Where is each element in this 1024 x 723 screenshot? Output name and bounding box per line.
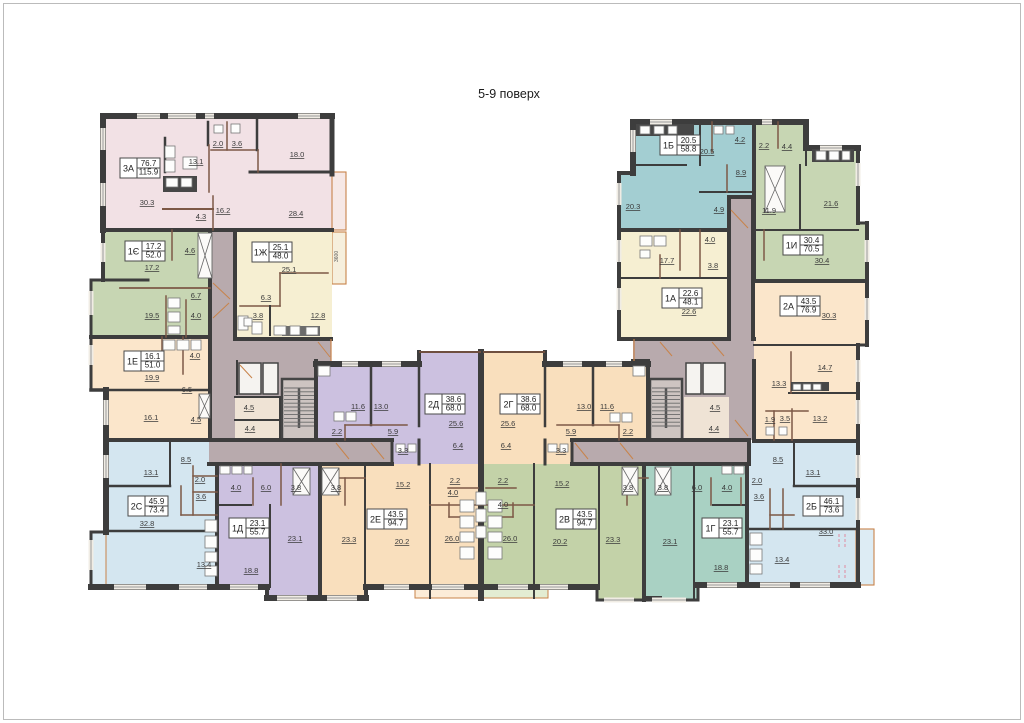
svg-text:17.7: 17.7: [660, 256, 675, 265]
svg-text:3600: 3600: [334, 251, 340, 262]
svg-text:51.0: 51.0: [145, 361, 161, 370]
svg-text:5-9 поверх: 5-9 поверх: [478, 87, 541, 101]
svg-text:13.4: 13.4: [197, 560, 212, 569]
svg-text:33.0: 33.0: [819, 527, 834, 536]
svg-text:2.2: 2.2: [332, 427, 342, 436]
svg-text:13.2: 13.2: [813, 414, 828, 423]
svg-text:26.0: 26.0: [445, 534, 460, 543]
svg-text:3.6: 3.6: [196, 492, 206, 501]
svg-text:4.6: 4.6: [185, 246, 195, 255]
svg-text:20.2: 20.2: [553, 537, 568, 546]
svg-text:12.8: 12.8: [311, 311, 326, 320]
svg-text:5.9: 5.9: [388, 427, 398, 436]
svg-text:13.0: 13.0: [577, 402, 592, 411]
svg-text:5.9: 5.9: [566, 427, 576, 436]
svg-text:28.4: 28.4: [289, 209, 304, 218]
svg-text:4.3: 4.3: [196, 212, 206, 221]
svg-text:73.4: 73.4: [149, 506, 165, 515]
svg-text:19.9: 19.9: [145, 373, 160, 382]
svg-text:25.6: 25.6: [449, 419, 464, 428]
svg-text:2Б: 2Б: [806, 502, 817, 512]
svg-text:13.0: 13.0: [374, 402, 389, 411]
svg-text:4.0: 4.0: [191, 311, 201, 320]
svg-text:2Д: 2Д: [428, 400, 439, 410]
svg-text:13.1: 13.1: [144, 468, 159, 477]
svg-text:68.0: 68.0: [521, 404, 537, 413]
svg-text:23.3: 23.3: [606, 535, 621, 544]
svg-text:3.8: 3.8: [658, 483, 668, 492]
svg-text:11.6: 11.6: [600, 402, 614, 411]
svg-text:55.7: 55.7: [250, 528, 266, 537]
svg-text:1Б: 1Б: [663, 141, 674, 151]
svg-text:68.0: 68.0: [446, 404, 462, 413]
svg-text:52.0: 52.0: [146, 251, 162, 260]
svg-text:2.0: 2.0: [752, 476, 762, 485]
svg-text:25.6: 25.6: [501, 419, 516, 428]
svg-text:3.6: 3.6: [232, 139, 242, 148]
svg-text:6.0: 6.0: [692, 483, 702, 492]
svg-text:20.3: 20.3: [626, 202, 641, 211]
svg-text:70.5: 70.5: [804, 245, 820, 254]
svg-text:2.2: 2.2: [759, 141, 769, 150]
svg-text:4.5: 4.5: [244, 403, 254, 412]
svg-text:25.1: 25.1: [282, 265, 297, 274]
svg-text:15.2: 15.2: [396, 480, 411, 489]
svg-text:8.5: 8.5: [773, 455, 783, 464]
svg-text:6.0: 6.0: [261, 483, 271, 492]
svg-text:18.0: 18.0: [290, 150, 305, 159]
svg-text:48.0: 48.0: [273, 252, 289, 261]
svg-text:4.4: 4.4: [782, 142, 792, 151]
svg-text:58.8: 58.8: [681, 145, 697, 154]
svg-text:18.8: 18.8: [714, 563, 729, 572]
svg-text:48.1: 48.1: [683, 298, 699, 307]
svg-text:3.5: 3.5: [780, 414, 790, 423]
svg-text:2.0: 2.0: [213, 139, 223, 148]
svg-text:20.5: 20.5: [700, 147, 715, 156]
svg-text:1И: 1И: [786, 241, 797, 251]
svg-text:1Г: 1Г: [706, 524, 716, 534]
svg-text:4.0: 4.0: [448, 488, 458, 497]
svg-text:4.0: 4.0: [705, 235, 715, 244]
svg-text:4.9: 4.9: [714, 205, 724, 214]
svg-text:13.1: 13.1: [189, 157, 204, 166]
svg-text:8.5: 8.5: [181, 455, 191, 464]
svg-text:4.0: 4.0: [498, 500, 508, 509]
svg-text:6.4: 6.4: [453, 441, 463, 450]
svg-text:1А: 1А: [665, 294, 676, 304]
svg-text:6.4: 6.4: [501, 441, 511, 450]
svg-text:4.0: 4.0: [231, 483, 241, 492]
svg-text:3.3: 3.3: [556, 446, 566, 455]
svg-text:2Е: 2Е: [370, 515, 381, 525]
svg-text:2.2: 2.2: [498, 476, 508, 485]
svg-text:11.9: 11.9: [762, 206, 776, 215]
svg-text:20.2: 20.2: [395, 537, 410, 546]
svg-text:13.4: 13.4: [775, 555, 790, 564]
svg-text:16.2: 16.2: [216, 206, 231, 215]
svg-text:94.7: 94.7: [577, 519, 593, 528]
svg-text:94.7: 94.7: [388, 519, 404, 528]
svg-text:4.0: 4.0: [722, 483, 732, 492]
svg-text:2.0: 2.0: [195, 475, 205, 484]
svg-text:4.5: 4.5: [191, 415, 201, 424]
svg-text:3.8: 3.8: [253, 311, 263, 320]
svg-text:2.2: 2.2: [450, 476, 460, 485]
svg-text:3.8: 3.8: [291, 483, 301, 492]
svg-text:32.8: 32.8: [140, 519, 155, 528]
svg-text:4.4: 4.4: [245, 424, 255, 433]
svg-text:4.4: 4.4: [709, 424, 719, 433]
svg-text:73.6: 73.6: [824, 506, 840, 515]
svg-text:11.6: 11.6: [351, 402, 365, 411]
svg-text:30.3: 30.3: [140, 198, 155, 207]
svg-text:22.6: 22.6: [682, 307, 697, 316]
svg-text:13.3: 13.3: [772, 379, 787, 388]
svg-text:2.2: 2.2: [623, 427, 633, 436]
svg-text:3.8: 3.8: [708, 261, 718, 270]
svg-text:23.3: 23.3: [342, 535, 357, 544]
svg-text:30.3: 30.3: [822, 311, 837, 320]
svg-text:8.9: 8.9: [736, 168, 746, 177]
svg-text:3.8: 3.8: [331, 483, 341, 492]
svg-text:1Є: 1Є: [128, 247, 140, 257]
svg-text:26.0: 26.0: [503, 534, 518, 543]
svg-text:30.4: 30.4: [815, 256, 830, 265]
svg-text:2В: 2В: [559, 515, 570, 525]
svg-text:4.0: 4.0: [190, 351, 200, 360]
svg-text:3.3: 3.3: [398, 446, 408, 455]
svg-text:115.9: 115.9: [139, 168, 159, 177]
svg-text:14.7: 14.7: [818, 363, 833, 372]
svg-text:4.5: 4.5: [710, 403, 720, 412]
svg-text:76.9: 76.9: [801, 306, 817, 315]
svg-text:1.9: 1.9: [765, 415, 775, 424]
svg-text:15.2: 15.2: [555, 479, 570, 488]
svg-text:3.6: 3.6: [754, 492, 764, 501]
svg-text:6.3: 6.3: [261, 293, 271, 302]
svg-text:17.2: 17.2: [145, 263, 160, 272]
svg-text:16.1: 16.1: [144, 413, 159, 422]
svg-text:1Ж: 1Ж: [254, 248, 268, 258]
svg-text:3А: 3А: [123, 164, 134, 174]
svg-text:23.1: 23.1: [288, 534, 303, 543]
svg-text:21.6: 21.6: [824, 199, 839, 208]
svg-text:6.7: 6.7: [191, 291, 201, 300]
svg-text:55.7: 55.7: [723, 528, 739, 537]
svg-text:18.8: 18.8: [244, 566, 259, 575]
svg-text:1Д: 1Д: [232, 524, 243, 534]
svg-text:6.5: 6.5: [182, 385, 192, 394]
svg-text:3.8: 3.8: [623, 483, 633, 492]
svg-text:4.2: 4.2: [735, 135, 745, 144]
svg-text:13.1: 13.1: [806, 468, 821, 477]
svg-text:1Е: 1Е: [127, 357, 138, 367]
svg-text:2С: 2С: [131, 502, 143, 512]
svg-text:19.5: 19.5: [145, 311, 160, 320]
svg-text:23.1: 23.1: [663, 537, 678, 546]
svg-text:2Г: 2Г: [504, 400, 514, 410]
svg-text:2А: 2А: [783, 302, 794, 312]
